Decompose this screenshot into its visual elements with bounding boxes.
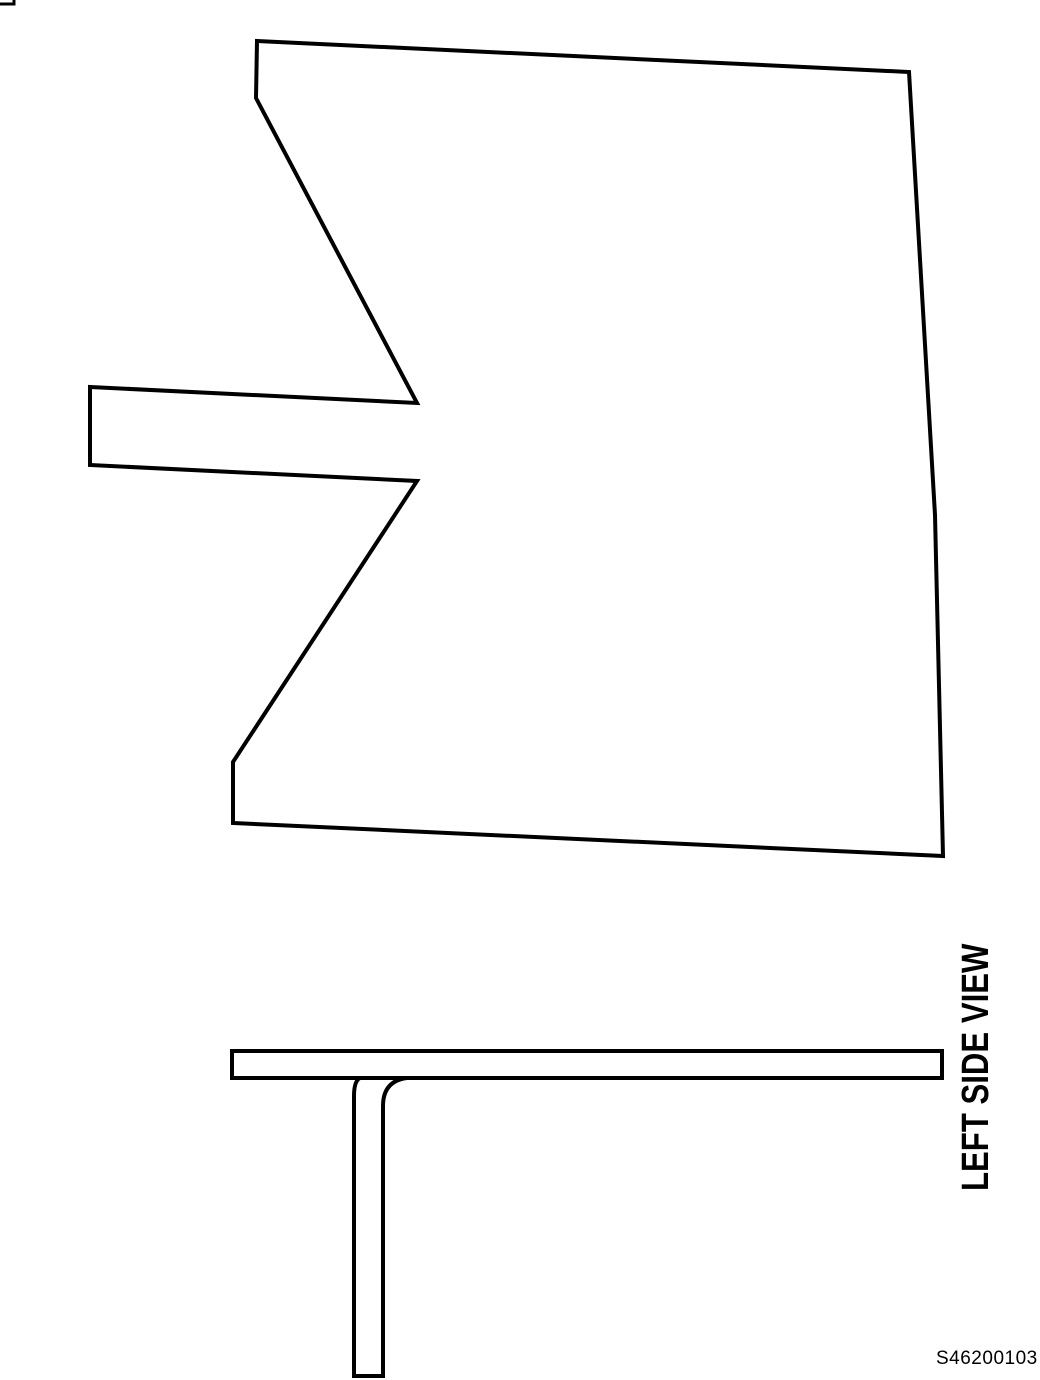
figure-svg: LEFT SIDE VIEW S46200103 [0,0,1040,1380]
side-profile-leg-shape [354,1078,407,1376]
template-outline-shape [90,41,943,856]
figure-code: S46200103 [936,1348,1038,1369]
page-corner-mark [0,0,14,4]
left-side-view-label: LEFT SIDE VIEW [955,943,997,1191]
side-profile-bar-shape [232,1051,942,1078]
drawing-page: LEFT SIDE VIEW S46200103 [0,0,1040,1380]
